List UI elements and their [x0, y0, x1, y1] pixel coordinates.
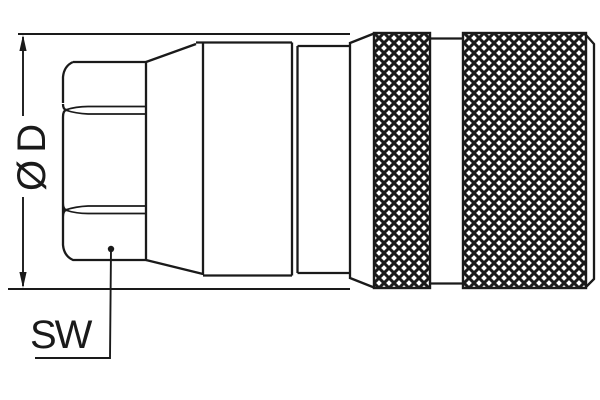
arrow-down-icon — [19, 272, 26, 288]
collar-face — [350, 34, 374, 288]
knurl-band-left — [374, 33, 430, 288]
drawing-canvas: Ø D — [0, 0, 600, 400]
sleeve-cylinder-large — [196, 43, 292, 276]
dimension-diameter: Ø D — [8, 34, 350, 289]
arrow-up-icon — [19, 35, 26, 51]
sleeve-step-lines — [292, 43, 298, 276]
hex-face-lines-lower — [65, 206, 146, 214]
hex-face-lines-upper — [65, 107, 146, 115]
cone-section — [146, 44, 203, 274]
knurl-groove — [430, 39, 463, 284]
sleeve-cylinder-small — [298, 46, 350, 273]
diameter-label: Ø D — [10, 126, 54, 191]
coupling-body — [63, 33, 594, 288]
coupling-drawing: Ø D — [0, 0, 600, 400]
end-face — [586, 35, 594, 287]
wrench-size-label: SW — [30, 313, 93, 357]
annotation-wrench-size: SW — [30, 246, 114, 358]
knurl-band-right — [463, 33, 586, 288]
hex-nut — [63, 62, 146, 260]
